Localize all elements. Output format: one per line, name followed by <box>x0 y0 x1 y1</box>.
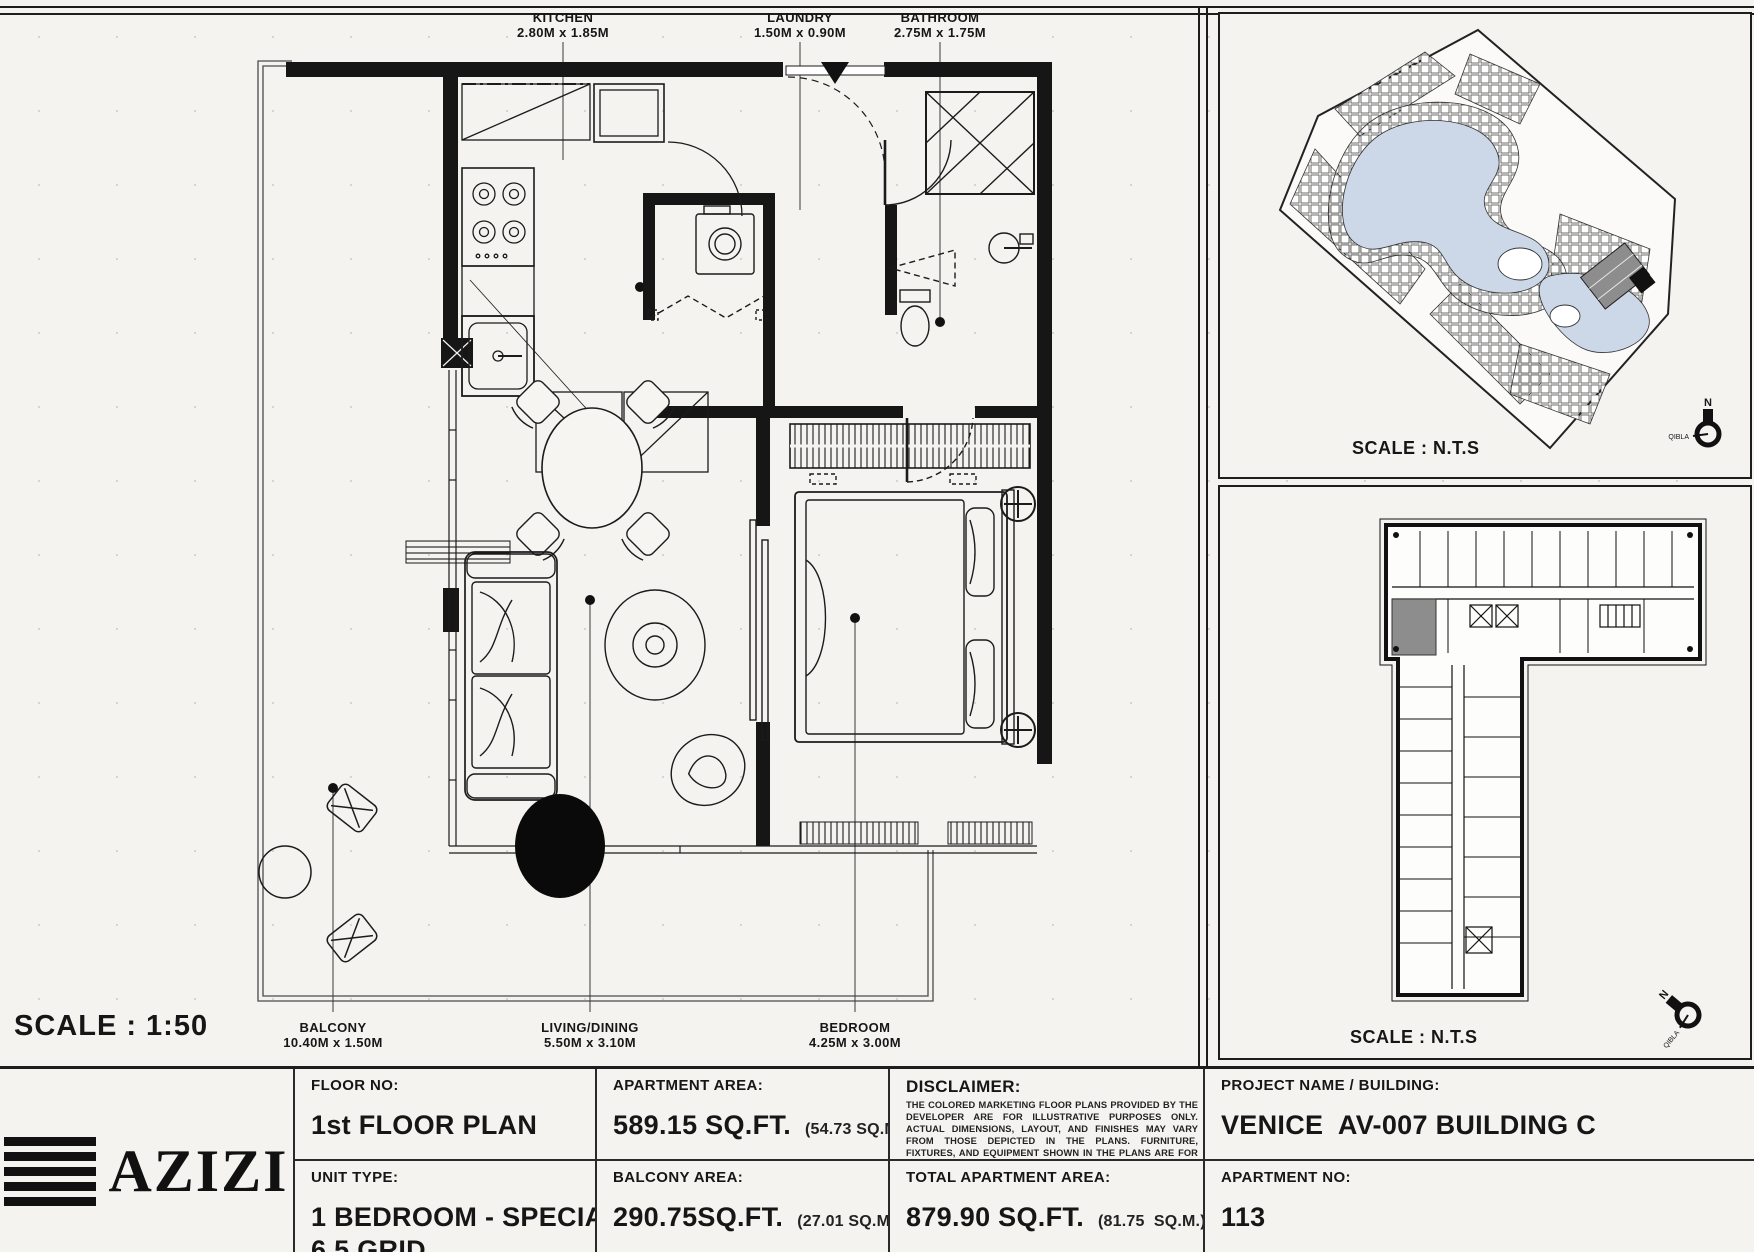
main-scale-label: SCALE : 1:50 <box>14 1010 208 1043</box>
floor-no-label: FLOOR NO: <box>311 1077 581 1094</box>
apartment-area-note: (54.73 SQ.M.) <box>805 1121 890 1138</box>
brand-logo: AZIZI <box>0 1069 295 1252</box>
floor-no-value: 1st FLOOR PLAN <box>311 1110 581 1141</box>
total-area-value: 879.90 SQ.FT. <box>906 1202 1084 1232</box>
apartment-area-value: 589.15 SQ.FT. <box>613 1110 791 1140</box>
site-plan-drawing: N QIBLA <box>1220 14 1746 473</box>
unit-type-label: UNIT TYPE: <box>311 1169 581 1186</box>
brand-name: AZIZI <box>108 1141 288 1201</box>
key-building-outline <box>1380 519 1706 1001</box>
living-dining-dims: 5.50M x 3.10M <box>544 1035 636 1050</box>
bedroom-dims: 4.25M x 3.00M <box>809 1035 901 1050</box>
bathroom-dims: 2.75M x 1.75M <box>894 25 986 40</box>
total-area-cell: TOTAL APARTMENT AREA: 879.90 SQ.FT.(81.7… <box>890 1161 1205 1252</box>
apartment-area-label: APARTMENT AREA: <box>613 1077 874 1094</box>
site-plan-panel: N QIBLA SCALE : N.T.S <box>1218 12 1752 479</box>
key-plan-panel: N QIBLA SCALE : N.T.S <box>1218 485 1752 1060</box>
key-highlighted-unit <box>1392 599 1436 655</box>
dining-set <box>508 378 677 564</box>
total-area-label: TOTAL APARTMENT AREA: <box>906 1169 1189 1186</box>
key-plan-drawing: N QIBLA <box>1220 487 1746 1054</box>
laundry-label: LAUNDRY <box>767 10 833 25</box>
kitchen-label: KITCHEN <box>533 10 594 25</box>
disclaimer-text: THE COLORED MARKETING FLOOR PLANS PROVID… <box>906 1100 1198 1161</box>
entry-door <box>786 62 885 174</box>
apartment-no-cell: APARTMENT NO: 113 <box>1205 1161 1754 1252</box>
laundry-fixtures <box>648 206 766 320</box>
floor-plan-sheet: KITCHEN 2.80M x 1.85M LAUNDRY 1.50M x 0.… <box>0 0 1754 1252</box>
north-arrow-icon: N QIBLA <box>1668 397 1719 445</box>
bedroom-label: BEDROOM <box>820 1020 891 1035</box>
site-plan-scale-label: SCALE : N.T.S <box>1352 438 1480 459</box>
north-arrow-icon: N QIBLA <box>1634 983 1703 1053</box>
unit-type-value-line1: 1 BEDROOM - SPECIAL 04 <box>311 1202 581 1233</box>
bathroom-label: BATHROOM <box>901 10 980 25</box>
main-floor-plan: KITCHEN 2.80M x 1.85M LAUNDRY 1.50M x 0.… <box>0 0 1200 1060</box>
azizi-bars-icon <box>4 1137 96 1206</box>
balcony-label: BALCONY <box>299 1020 366 1035</box>
title-block-table: AZIZI FLOOR NO: 1st FLOOR PLAN APARTMENT… <box>0 1066 1754 1252</box>
key-plan-scale-label: SCALE : N.T.S <box>1350 1027 1478 1048</box>
living-dining-label: LIVING/DINING <box>541 1020 639 1035</box>
svg-text:QIBLA: QIBLA <box>1668 434 1689 441</box>
apartment-no-value: 113 <box>1221 1202 1740 1233</box>
balcony-dims: 10.40M x 1.50M <box>283 1035 383 1050</box>
kitchen-dims: 2.80M x 1.85M <box>517 25 609 40</box>
balcony-area-label: BALCONY AREA: <box>613 1169 874 1186</box>
balcony-furniture <box>259 782 379 964</box>
apartment-area-cell: APARTMENT AREA: 589.15 SQ.FT.(54.73 SQ.M… <box>597 1069 890 1161</box>
project-value: VENICE AV-007 BUILDING C <box>1221 1110 1740 1141</box>
total-area-note: (81.75 SQ.M.) <box>1098 1213 1205 1230</box>
disclaimer-label: DISCLAIMER: <box>906 1077 1189 1097</box>
living-furniture <box>465 520 768 898</box>
disclaimer-cell: DISCLAIMER: THE COLORED MARKETING FLOOR … <box>890 1069 1205 1161</box>
balcony-area-cell: BALCONY AREA: 290.75SQ.FT.(27.01 SQ.M.) <box>597 1161 890 1252</box>
unit-type-cell: UNIT TYPE: 1 BEDROOM - SPECIAL 04 6.5 GR… <box>295 1161 597 1252</box>
bedroom-furniture <box>790 418 1035 844</box>
unit-type-value-line2: 6.5 GRID <box>311 1235 581 1252</box>
apartment-no-label: APARTMENT NO: <box>1221 1169 1740 1186</box>
project-label: PROJECT NAME / BUILDING: <box>1221 1077 1740 1094</box>
bathroom-fixtures <box>885 92 1034 346</box>
balcony-area-value: 290.75SQ.FT. <box>613 1202 783 1232</box>
svg-text:N: N <box>1704 397 1712 409</box>
project-cell: PROJECT NAME / BUILDING: VENICE AV-007 B… <box>1205 1069 1754 1161</box>
laundry-dims: 1.50M x 0.90M <box>754 25 846 40</box>
svg-text:QIBLA: QIBLA <box>1663 1029 1682 1050</box>
floor-no-cell: FLOOR NO: 1st FLOOR PLAN <box>295 1069 597 1161</box>
balcony-area-note: (27.01 SQ.M.) <box>797 1213 890 1230</box>
